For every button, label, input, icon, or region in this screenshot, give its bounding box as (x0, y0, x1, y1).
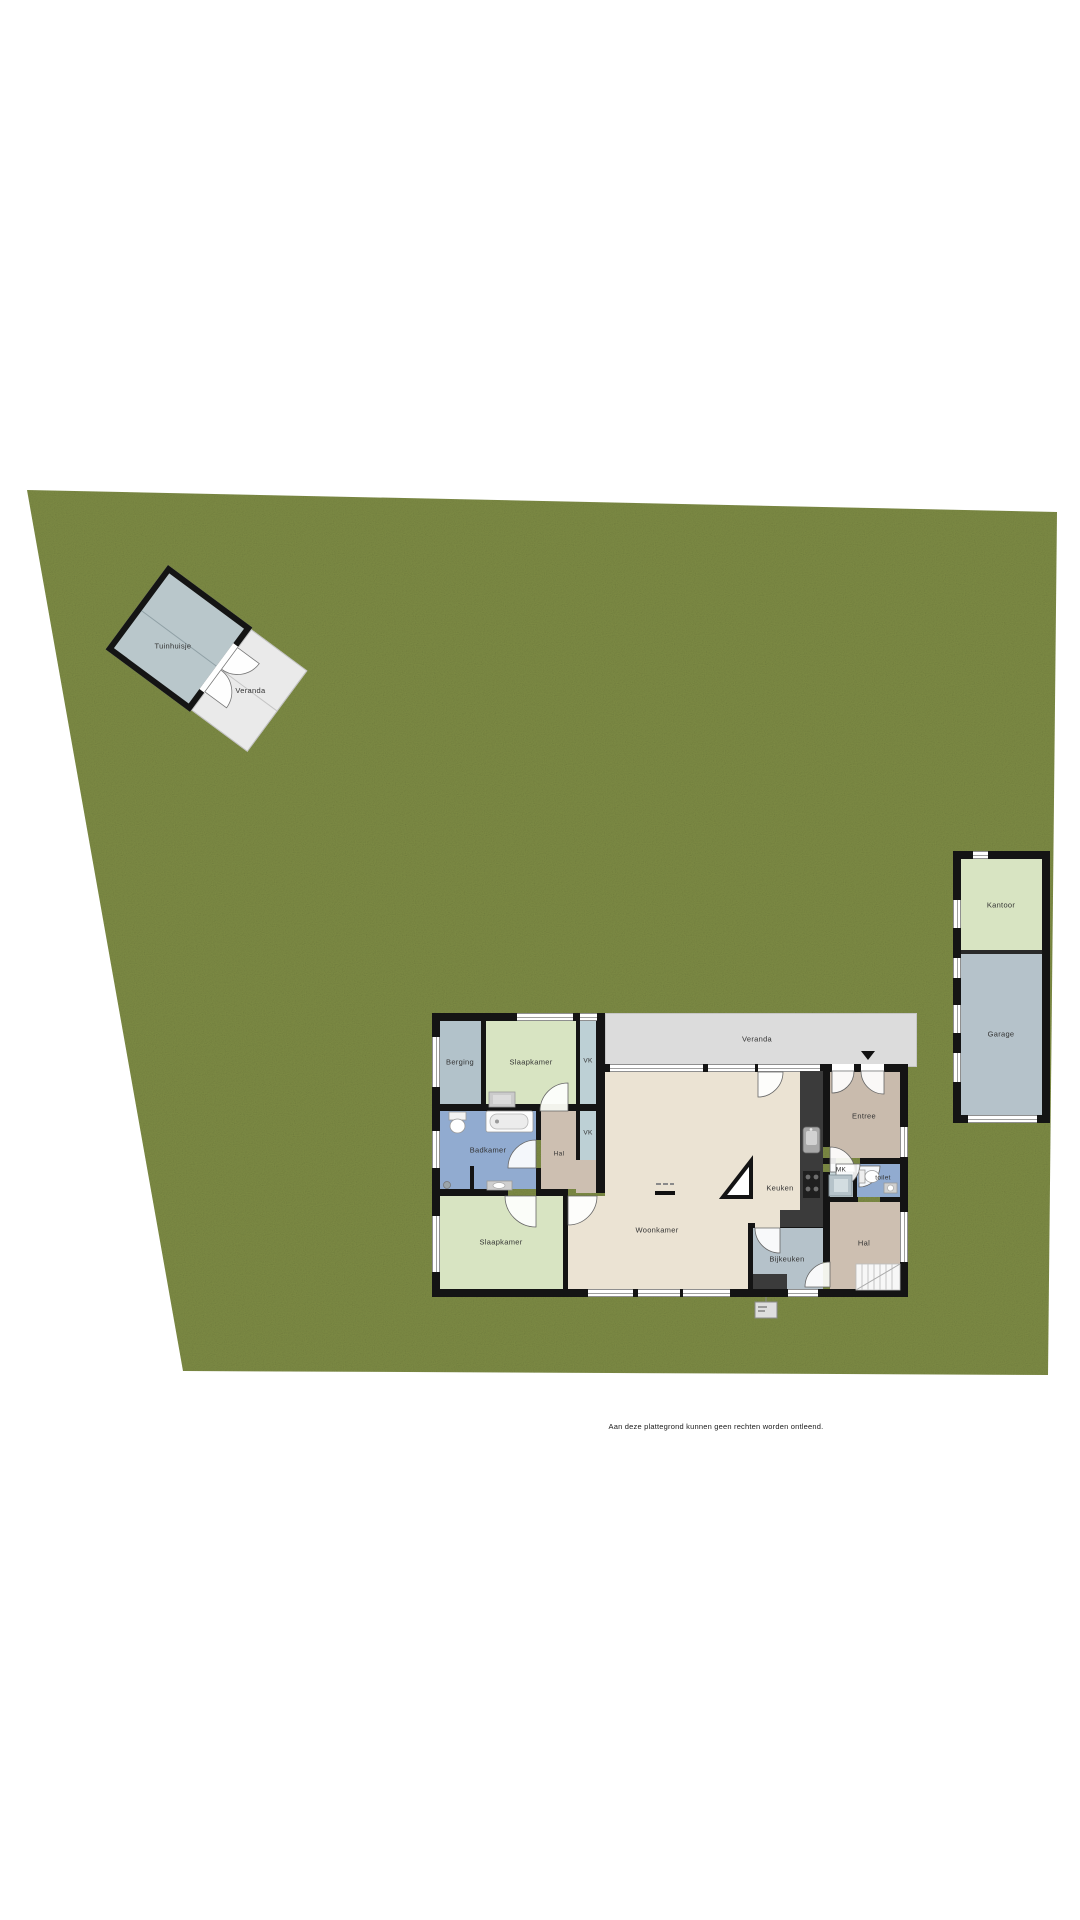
label-badkamer: Badkamer (470, 1146, 507, 1155)
fixtures-overlay (0, 0, 1080, 1920)
label-veranda: Veranda (742, 1035, 772, 1044)
burner-icon (814, 1175, 819, 1180)
faucet-icon (810, 1128, 813, 1131)
door-arc (805, 1262, 830, 1287)
shelf-mark (656, 1183, 661, 1185)
label-keuken: Keuken (766, 1184, 793, 1193)
label-toilet: toilet (875, 1175, 891, 1182)
triangle-divider (723, 1161, 751, 1197)
label-bijkeuken: Bijkeuken (769, 1255, 804, 1264)
label-woonkamer: Woonkamer (636, 1226, 679, 1235)
drain-icon (495, 1120, 499, 1124)
toilet-bowl (450, 1119, 465, 1133)
sink-bowl (888, 1185, 894, 1191)
label-hal-klein: Hal (554, 1151, 565, 1158)
burner-icon (806, 1175, 811, 1180)
stove (803, 1171, 820, 1198)
door-arc (861, 1071, 884, 1094)
dresser-top (493, 1095, 511, 1104)
toilet-tank (859, 1170, 865, 1183)
door-arc (540, 1083, 568, 1111)
door-arc (758, 1072, 783, 1097)
door-arc (832, 1071, 854, 1093)
label-hal-groot: Hal (858, 1239, 870, 1248)
label-vk-onder: VK (583, 1130, 592, 1137)
label-entree: Entree (852, 1112, 876, 1121)
stairs (856, 1264, 900, 1290)
entrance-marker-icon (861, 1051, 875, 1060)
burner-icon (814, 1187, 819, 1192)
bijkeuken-counter (753, 1274, 787, 1289)
label-kantoor: Kantoor (987, 901, 1015, 910)
shelf-mark (663, 1183, 668, 1185)
cv-unit (755, 1297, 777, 1318)
label-berging: Berging (446, 1058, 474, 1067)
shelf-mark (670, 1183, 674, 1185)
door-arc (568, 1196, 597, 1225)
washer-door (834, 1179, 848, 1192)
door-arc (505, 1196, 536, 1227)
floorplan-page: Tuinhuisje Veranda (0, 0, 1080, 1920)
label-slaapkamer-onder: Slaapkamer (479, 1238, 522, 1247)
label-vk-boven: VK (583, 1058, 592, 1065)
door-arc (508, 1140, 536, 1168)
tv (655, 1191, 675, 1195)
kitchen-counter (780, 1210, 823, 1227)
kitchen-sink-basin (806, 1131, 817, 1145)
burner-icon (806, 1187, 811, 1192)
label-mk: MK (836, 1167, 846, 1174)
shower-icon (444, 1182, 451, 1189)
label-slaapkamer-boven: Slaapkamer (509, 1058, 552, 1067)
label-garage: Garage (988, 1030, 1015, 1039)
washbasin-bowl (493, 1183, 505, 1189)
door-arc (755, 1228, 780, 1253)
disclaimer-text: Aan deze plattegrond kunnen geen rechten… (556, 1422, 876, 1431)
